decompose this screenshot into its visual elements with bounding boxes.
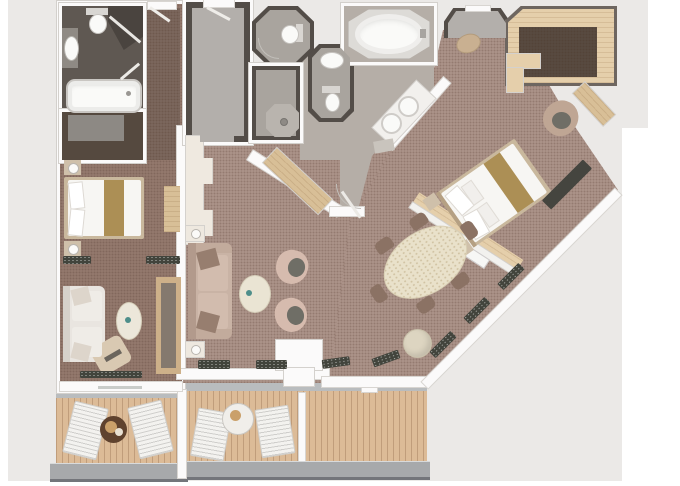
desk-chair-cushion: [552, 112, 571, 129]
balcony-party-wall: [178, 390, 186, 478]
foyer-living-opening: [200, 134, 234, 142]
guest-bed-pillow-1: [68, 181, 86, 209]
living-sofa-back: [188, 243, 196, 339]
living-coffee-table: [239, 275, 271, 313]
main-balcony-privacy-divider: [299, 393, 305, 461]
wc-toilet-tank: [322, 86, 340, 93]
wc-sink: [320, 52, 344, 69]
living-window-planter-2: [256, 360, 287, 369]
guest-lamp-top: [68, 163, 79, 174]
guest-dresser: [164, 186, 180, 232]
end-table-bottom-lamp: [191, 345, 201, 355]
entry-foyer-floor: [192, 8, 244, 136]
guest-divider-left: [63, 256, 91, 264]
walk-in-closet-carpet: [519, 27, 597, 77]
living-window-planter-1: [198, 360, 230, 369]
master-entry-alcove-floor: [448, 11, 506, 38]
guest-bed-runner: [104, 180, 124, 236]
guest-window-curtain: [80, 371, 142, 378]
guest-sofa-back: [63, 286, 70, 362]
wc-toilet-bowl: [325, 93, 340, 112]
bedroom-balcony-glazing: [322, 377, 428, 387]
shower-drain: [280, 118, 288, 126]
soaking-tub-basin: [355, 14, 423, 54]
guest-bathtub: [66, 79, 142, 113]
guest-balcony-door-glazing: [98, 386, 142, 389]
end-table-top-lamp: [191, 229, 201, 239]
main-balcony-railing: [183, 461, 430, 480]
guest-corridor-floor: [143, 8, 180, 160]
tub-drain: [126, 91, 131, 96]
guest-bed-pillow-2: [68, 208, 86, 236]
breakfast-table-plate: [230, 410, 241, 421]
bar-cabinet-step-1: [203, 158, 212, 184]
master-entry-door-gap: [466, 6, 490, 11]
drinks-table-cup: [115, 428, 123, 436]
tub-faucet: [420, 29, 426, 38]
closet-counter-side: [507, 68, 523, 92]
powder-toilet-bowl: [281, 25, 299, 44]
guest-media-cabinet-panel: [161, 283, 176, 368]
living-balcony-door-step: [284, 368, 314, 386]
round-pouf: [403, 329, 432, 358]
floor-plan: [0, 0, 680, 486]
guest-sink-basin: [64, 36, 79, 61]
guest-closet-rug: [68, 115, 124, 141]
guest-divider-right: [146, 256, 180, 264]
closet-counter-top: [507, 54, 540, 68]
guest-toilet-bowl: [89, 14, 107, 34]
guest-balcony-railing: [50, 463, 188, 482]
guest-lamp-bottom: [68, 244, 79, 255]
coffee-table-decor: [246, 290, 252, 296]
bar-cabinet-step-2: [203, 210, 212, 236]
guest-table-decor: [125, 317, 131, 323]
